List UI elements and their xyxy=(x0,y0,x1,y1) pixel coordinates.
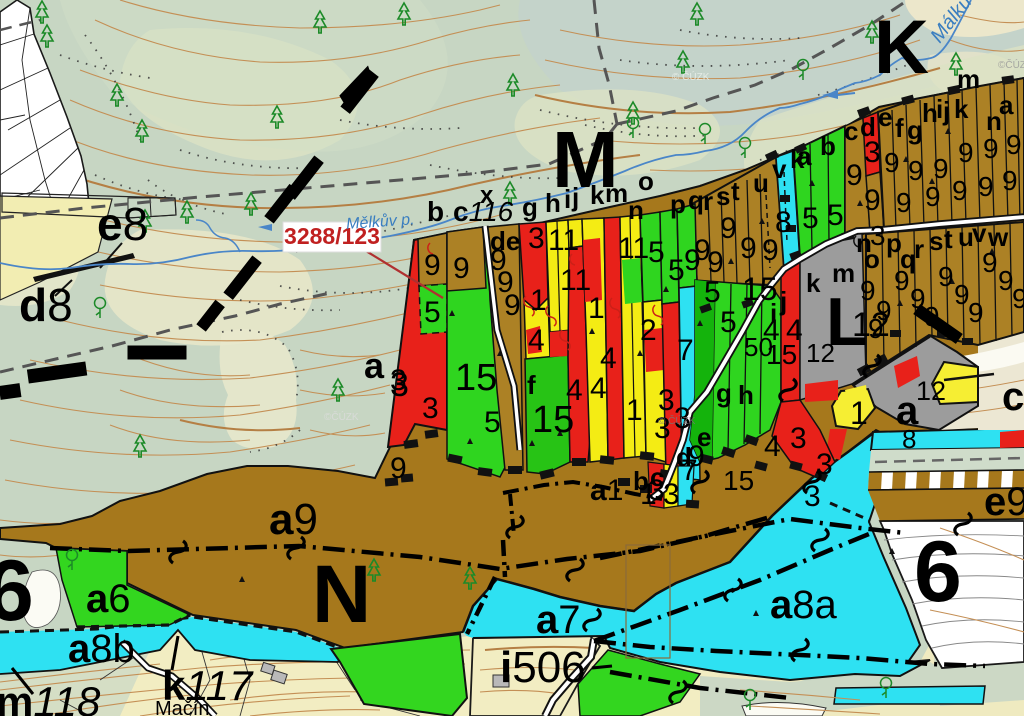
svg-text:h: h xyxy=(738,380,754,410)
svg-text:9: 9 xyxy=(884,147,900,178)
svg-text:3: 3 xyxy=(790,422,807,455)
svg-text:© ČÚZK: © ČÚZK xyxy=(658,414,696,427)
svg-text:m118: m118 xyxy=(0,678,101,716)
svg-text:j: j xyxy=(571,182,579,212)
svg-text:c116: c116 xyxy=(453,196,514,227)
svg-text:9: 9 xyxy=(864,184,881,217)
svg-text:5: 5 xyxy=(424,296,441,329)
svg-text:u: u xyxy=(753,168,769,198)
svg-text:p: p xyxy=(670,189,686,219)
svg-text:12: 12 xyxy=(916,376,946,406)
svg-text:d8: d8 xyxy=(19,279,73,331)
svg-text:c: c xyxy=(844,116,858,146)
svg-text:3: 3 xyxy=(663,478,680,511)
svg-text:1: 1 xyxy=(530,284,547,317)
svg-text:3: 3 xyxy=(422,392,439,425)
svg-text:n: n xyxy=(628,195,644,225)
svg-text:9: 9 xyxy=(908,155,924,186)
svg-text:9: 9 xyxy=(1006,129,1022,160)
svg-text:9: 9 xyxy=(846,159,863,192)
svg-text:g: g xyxy=(522,192,538,222)
svg-text:i506: i506 xyxy=(500,643,586,692)
svg-text:a8b: a8b xyxy=(68,627,135,671)
svg-text:© ČÚZK: © ČÚZK xyxy=(672,70,710,83)
svg-text:4: 4 xyxy=(786,314,803,347)
svg-text:9: 9 xyxy=(983,133,999,164)
svg-text:5: 5 xyxy=(802,202,819,235)
svg-text:m: m xyxy=(832,258,855,288)
svg-text:5: 5 xyxy=(484,406,501,439)
svg-text:v: v xyxy=(972,218,987,248)
svg-text:a8a: a8a xyxy=(770,583,837,627)
svg-text:K: K xyxy=(874,5,929,90)
svg-text:9: 9 xyxy=(390,452,407,485)
svg-text:g: g xyxy=(907,115,923,145)
svg-text:9: 9 xyxy=(740,232,757,265)
svg-text:9: 9 xyxy=(968,297,984,328)
svg-text:a: a xyxy=(364,345,385,386)
svg-text:a9: a9 xyxy=(269,495,318,544)
svg-text:k: k xyxy=(954,94,969,124)
svg-text:15: 15 xyxy=(455,357,497,399)
svg-text:b: b xyxy=(427,196,444,227)
svg-text:3: 3 xyxy=(390,364,407,397)
svg-text:3: 3 xyxy=(864,136,881,169)
svg-text:2: 2 xyxy=(640,314,657,347)
svg-text:3: 3 xyxy=(528,222,545,255)
svg-text:t: t xyxy=(944,224,953,254)
svg-text:j: j xyxy=(942,96,950,126)
svg-text:a6: a6 xyxy=(86,577,131,621)
svg-text:4: 4 xyxy=(528,324,545,357)
svg-text:9: 9 xyxy=(860,275,876,306)
svg-text:o: o xyxy=(638,166,654,196)
svg-text:9: 9 xyxy=(1002,165,1018,196)
svg-text:9: 9 xyxy=(925,181,941,212)
svg-text:e8: e8 xyxy=(97,198,148,250)
svg-text:9: 9 xyxy=(952,175,968,206)
svg-text:r: r xyxy=(914,234,924,264)
svg-text:9: 9 xyxy=(868,313,884,344)
svg-text:3: 3 xyxy=(804,480,821,513)
svg-text:5: 5 xyxy=(827,199,844,232)
svg-text:9: 9 xyxy=(978,171,994,202)
svg-text:3: 3 xyxy=(870,220,886,251)
svg-text:N: N xyxy=(312,549,371,640)
svg-text:e: e xyxy=(878,102,892,132)
svg-text:b: b xyxy=(820,131,836,161)
svg-text:4: 4 xyxy=(590,372,607,405)
svg-text:9: 9 xyxy=(504,289,521,322)
svg-text:9: 9 xyxy=(424,249,441,282)
svg-text:9: 9 xyxy=(924,301,940,332)
svg-text:4: 4 xyxy=(566,374,583,407)
svg-text:4: 4 xyxy=(764,430,781,463)
svg-text:1: 1 xyxy=(850,395,868,431)
svg-text:5: 5 xyxy=(668,254,685,287)
svg-text:9: 9 xyxy=(896,187,912,218)
svg-text:k: k xyxy=(590,180,605,210)
svg-text:9: 9 xyxy=(688,440,705,473)
svg-text:h: h xyxy=(545,188,561,218)
svg-text:s: s xyxy=(929,226,943,256)
svg-text:15: 15 xyxy=(723,465,754,496)
svg-text:9: 9 xyxy=(958,137,974,168)
svg-text:v: v xyxy=(772,154,787,184)
svg-text:c1: c1 xyxy=(1002,375,1024,419)
svg-text:i: i xyxy=(564,184,571,214)
svg-text:5: 5 xyxy=(648,236,665,269)
svg-text:8: 8 xyxy=(902,424,916,454)
svg-text:r: r xyxy=(703,186,713,216)
svg-text:9: 9 xyxy=(938,261,954,292)
svg-text:12: 12 xyxy=(806,338,835,368)
svg-text:9: 9 xyxy=(1012,283,1024,314)
svg-text:8: 8 xyxy=(775,206,792,239)
svg-text:11: 11 xyxy=(560,264,591,297)
svg-text:9: 9 xyxy=(933,153,949,184)
svg-text:11: 11 xyxy=(618,232,649,265)
svg-text:4: 4 xyxy=(600,342,617,375)
svg-text:5: 5 xyxy=(720,306,737,339)
svg-text:©ČÚZK: ©ČÚZK xyxy=(324,410,359,423)
svg-text:Mačín: Mačín xyxy=(155,698,209,716)
svg-text:m: m xyxy=(957,64,980,94)
svg-text:15: 15 xyxy=(742,271,778,307)
svg-text:m: m xyxy=(605,178,628,208)
svg-text:a7: a7 xyxy=(536,598,581,642)
svg-text:q: q xyxy=(688,185,704,215)
svg-text:9: 9 xyxy=(720,212,737,245)
svg-text:9: 9 xyxy=(982,247,998,278)
svg-text:a: a xyxy=(797,141,812,171)
svg-text:a1: a1 xyxy=(590,474,623,507)
svg-text:7: 7 xyxy=(677,334,694,367)
svg-text:j: j xyxy=(779,286,787,316)
svg-text:a: a xyxy=(999,90,1014,120)
svg-text:9: 9 xyxy=(453,252,470,285)
svg-text:f: f xyxy=(895,113,904,143)
svg-text:e9: e9 xyxy=(984,480,1024,524)
svg-text:9: 9 xyxy=(707,246,724,279)
svg-text:t: t xyxy=(731,176,740,206)
svg-text:11: 11 xyxy=(548,224,579,257)
svg-text:g: g xyxy=(716,378,732,408)
svg-text:3: 3 xyxy=(816,448,833,481)
svg-text:f: f xyxy=(527,370,536,400)
svg-text:©ČÚZK: ©ČÚZK xyxy=(998,58,1024,71)
svg-text:1: 1 xyxy=(588,292,605,325)
svg-text:5: 5 xyxy=(704,276,721,309)
svg-text:9: 9 xyxy=(894,265,910,296)
svg-text:k: k xyxy=(806,268,821,298)
svg-text:6: 6 xyxy=(0,543,34,639)
svg-text:s: s xyxy=(716,181,730,211)
svg-text:1: 1 xyxy=(626,394,643,427)
svg-text:6: 6 xyxy=(914,524,962,620)
